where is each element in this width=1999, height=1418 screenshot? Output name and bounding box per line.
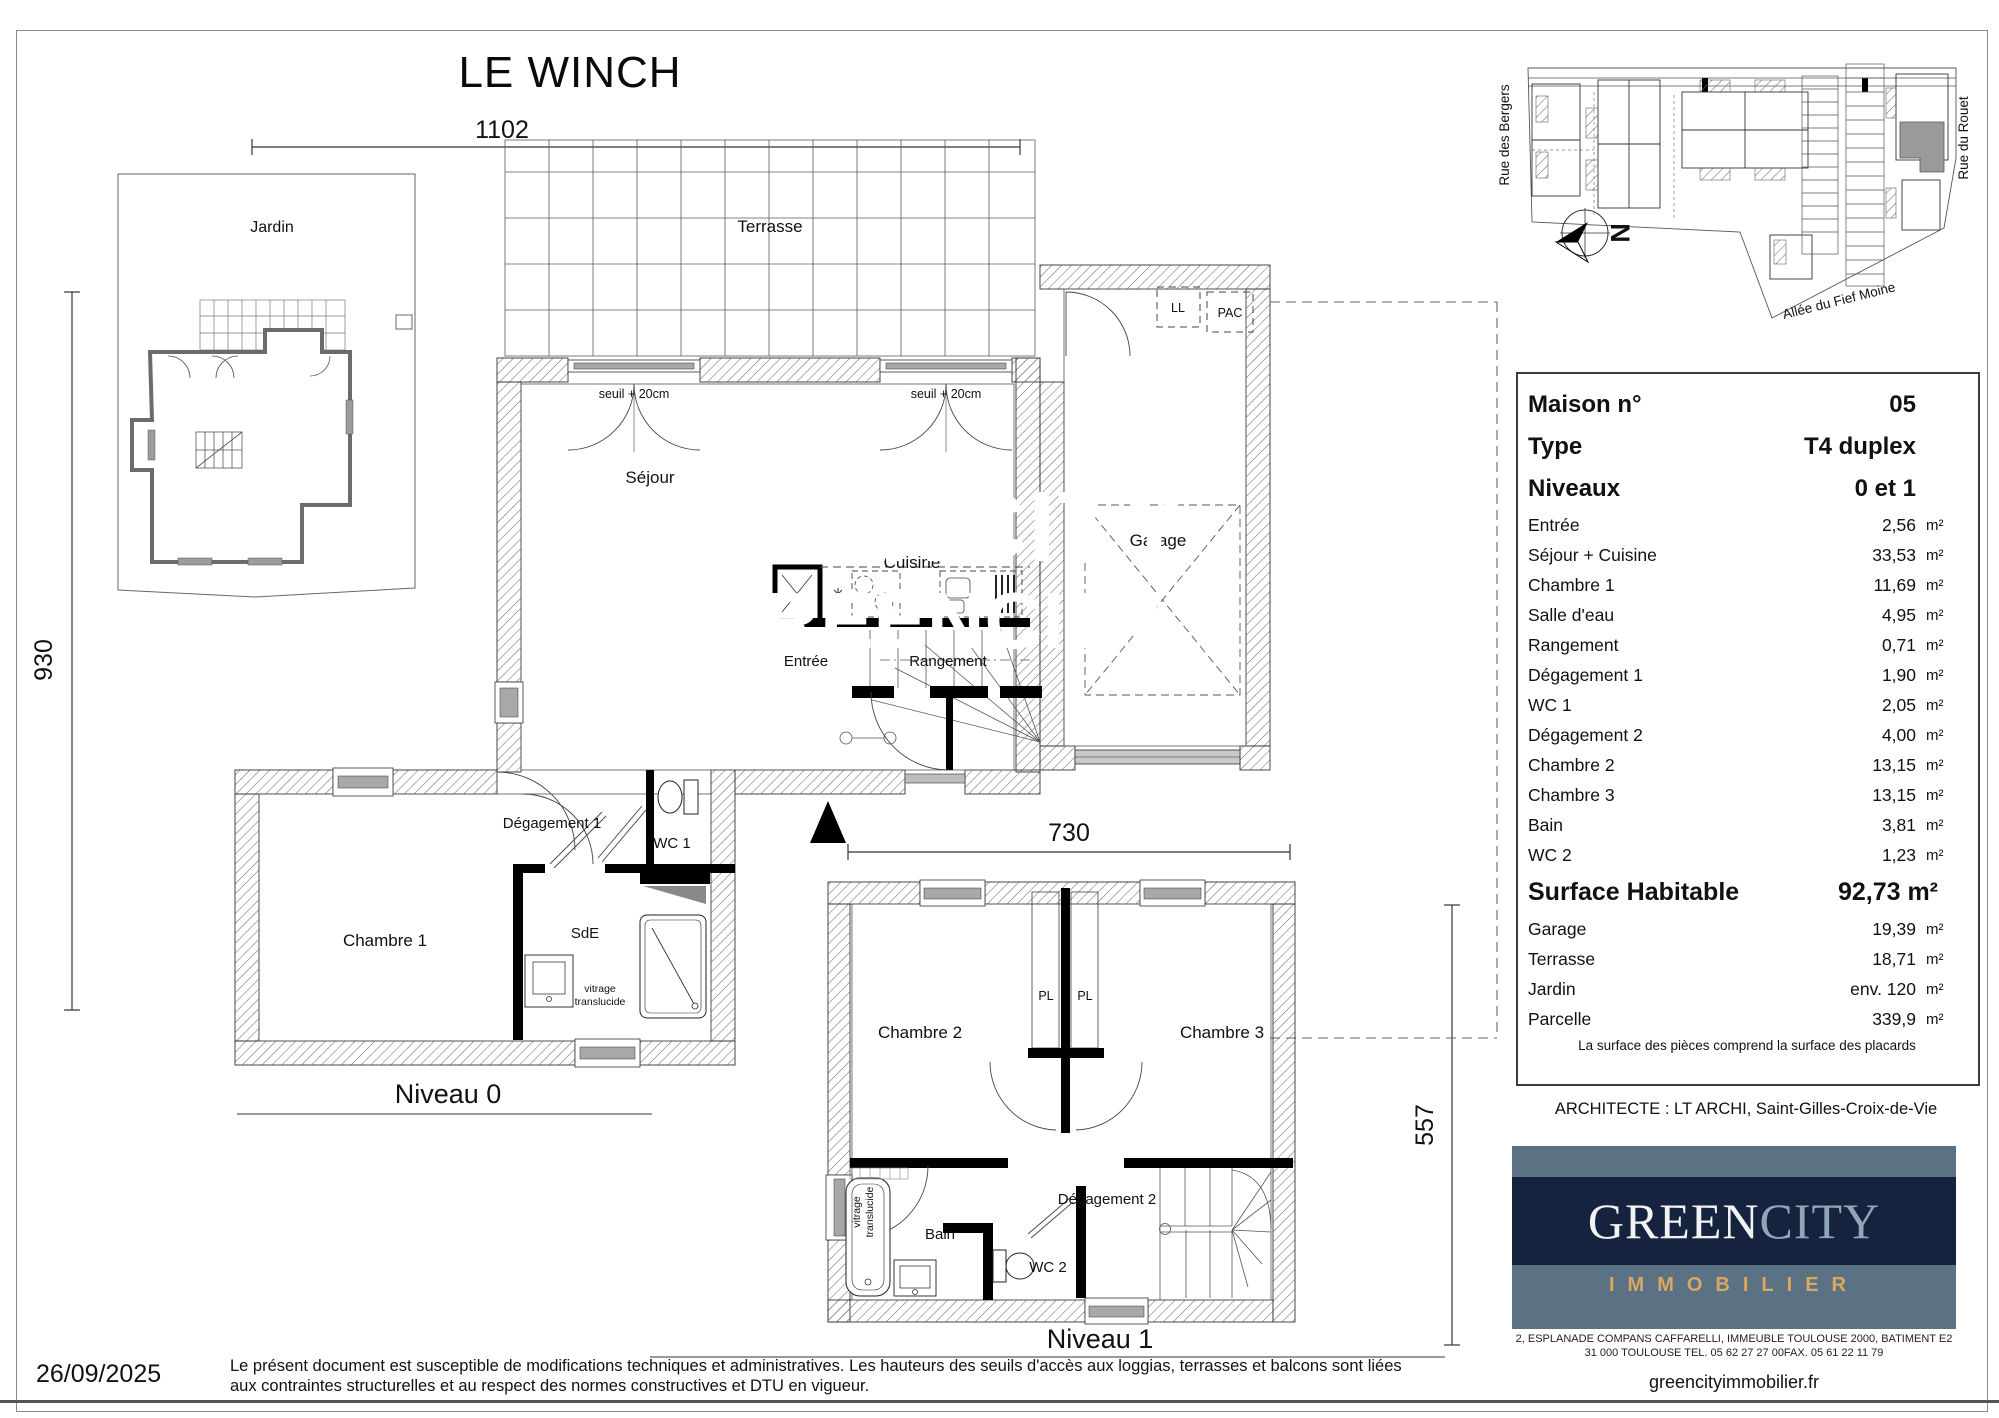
street-label-rouet: Rue du Rouet: [1956, 96, 1971, 180]
info-label: Surface Habitable: [1528, 878, 1748, 907]
info-unit: m²: [1916, 517, 1966, 534]
room-label-sde: SdE: [571, 925, 599, 942]
room-label-degagement1: Dégagement 1: [503, 815, 601, 832]
room-label-chambre3: Chambre 3: [1180, 1023, 1264, 1042]
label-pac: PAC: [1218, 306, 1243, 320]
disclaimer-line-1: Le présent document est susceptible de m…: [230, 1356, 1560, 1376]
logo-wordmark: GREENCITY: [1512, 1177, 1956, 1265]
info-value: 4,00: [1796, 725, 1916, 746]
room-label-chambre2: Chambre 2: [878, 1023, 962, 1042]
logo-address: 2, ESPLANADE COMPANS CAFFARELLI, IMMEUBL…: [1512, 1332, 1956, 1360]
info-value: 1,90: [1796, 665, 1916, 686]
note-seuil-1: seuil + 20cm: [599, 387, 670, 401]
partitions-niveau1: [850, 888, 1293, 1300]
info-panel: Maison n° 05 Type T4 duplex Niveaux 0 et…: [1516, 372, 1980, 1086]
dimension-557: [1444, 905, 1460, 1345]
info-label: Dégagement 1: [1528, 665, 1796, 686]
greencity-logo: GREENCITY IMMOBILIER: [1512, 1146, 1956, 1329]
info-label: Dégagement 2: [1528, 725, 1796, 746]
disclaimer-line-2: aux contraintes structurelles et au resp…: [230, 1376, 1560, 1396]
info-row: Chambre 2 13,15 m²: [1528, 750, 1966, 780]
floorplan-document: 1102 930 730 557: [0, 0, 1999, 1418]
info-row: Dégagement 2 4,00 m²: [1528, 720, 1966, 750]
info-row: WC 2 1,23 m²: [1528, 840, 1966, 870]
info-row: Séjour + Cuisine 33,53 m²: [1528, 540, 1966, 570]
architect-line: ARCHITECTE : LT ARCHI, Saint-Gilles-Croi…: [1512, 1100, 1980, 1119]
garden-plan: [118, 174, 415, 597]
info-value: 2,05: [1796, 695, 1916, 716]
info-label: Parcelle: [1528, 1009, 1796, 1030]
info-value: 0,71: [1796, 635, 1916, 656]
logo-green: GREEN: [1588, 1192, 1760, 1250]
site-plan: N Rue des Bergers Rue du Rouet Allée du …: [1497, 64, 1971, 322]
info-value: 13,15: [1796, 755, 1916, 776]
label-ll: LL: [1171, 301, 1185, 315]
room-label-pl2: PL: [1077, 989, 1092, 1003]
info-value: 1,23: [1796, 845, 1916, 866]
info-value: 19,39: [1796, 919, 1916, 940]
info-row-type: Type T4 duplex: [1528, 426, 1966, 468]
info-label: Garage: [1528, 919, 1796, 940]
info-label: Type: [1528, 433, 1716, 461]
street-label-bergers: Rue des Bergers: [1497, 84, 1512, 186]
note-seuil-2: seuil + 20cm: [911, 387, 982, 401]
info-value: 33,53: [1796, 545, 1916, 566]
room-label-jardin: Jardin: [250, 219, 294, 236]
info-unit: m²: [1916, 1011, 1966, 1028]
room-label-chambre1: Chambre 1: [343, 931, 427, 950]
info-row-maison: Maison n° 05: [1528, 384, 1966, 426]
page-title: LE WINCH: [320, 48, 820, 98]
address-line-2: 31 000 TOULOUSE TEL. 05 62 27 27 00FAX. …: [1512, 1346, 1956, 1360]
note-vitrage0-2: translucide: [575, 996, 626, 1008]
info-row: Jardin env. 120 m²: [1528, 974, 1966, 1004]
info-label: Séjour + Cuisine: [1528, 545, 1796, 566]
bottom-rule: [0, 1400, 1999, 1403]
info-value: 05: [1716, 391, 1916, 419]
info-value: 13,15: [1796, 785, 1916, 806]
info-label: Chambre 3: [1528, 785, 1796, 806]
highlighted-unit: [1900, 122, 1944, 172]
room-label-bain: Bain: [925, 1226, 955, 1243]
site-parking: [1802, 64, 1884, 286]
info-label: Terrasse: [1528, 949, 1796, 970]
plan1-caption: Niveau 1: [1047, 1324, 1154, 1354]
document-date: 26/09/2025: [36, 1360, 161, 1389]
info-unit: m²: [1916, 727, 1966, 744]
info-unit: m²: [1916, 547, 1966, 564]
info-row: Entrée 2,56 m²: [1528, 510, 1966, 540]
room-label-terrasse: Terrasse: [737, 217, 802, 236]
dimension-1102: [252, 139, 1020, 155]
info-label: Entrée: [1528, 515, 1796, 536]
logo-city: CITY: [1760, 1192, 1881, 1250]
info-label: Jardin: [1528, 979, 1796, 1000]
street-label-fief-moine: Allée du Fief Moine: [1781, 279, 1897, 322]
dim-557-label: 557: [1411, 1104, 1439, 1146]
info-unit: m²: [1916, 787, 1966, 804]
info-unit: m²: [1916, 667, 1966, 684]
info-unit: m²: [1916, 637, 1966, 654]
note-vitrage1-2: translucide: [864, 1186, 876, 1237]
dim-930-label: 930: [30, 639, 58, 681]
north-label: N: [1605, 223, 1635, 243]
room-label-degagement2: Dégagement 2: [1058, 1191, 1156, 1208]
info-label: Chambre 1: [1528, 575, 1796, 596]
info-unit: m²: [1916, 847, 1966, 864]
address-line-1: 2, ESPLANADE COMPANS CAFFARELLI, IMMEUBL…: [1512, 1332, 1956, 1346]
info-row: Dégagement 1 1,90 m²: [1528, 660, 1966, 690]
info-row: Chambre 3 13,15 m²: [1528, 780, 1966, 810]
watermark-logo: GREENCITY: [588, 470, 1189, 585]
legal-disclaimer: Le présent document est susceptible de m…: [230, 1356, 1560, 1396]
info-value: 92,73 m²: [1748, 878, 1938, 907]
info-row: Chambre 1 11,69 m²: [1528, 570, 1966, 600]
info-label: Chambre 2: [1528, 755, 1796, 776]
info-value: 4,95: [1796, 605, 1916, 626]
info-label: Niveaux: [1528, 475, 1716, 503]
info-label: Bain: [1528, 815, 1796, 836]
dimension-930: [64, 292, 80, 1010]
info-unit: m²: [1916, 817, 1966, 834]
plan0-caption: Niveau 0: [395, 1079, 502, 1109]
plan-niveau1: Chambre 2 Chambre 3 PL PL Dégagement 2 B…: [650, 880, 1445, 1357]
windows-niveau0: [333, 360, 1240, 1067]
info-unit: m²: [1916, 757, 1966, 774]
info-value: env. 120: [1796, 979, 1916, 1000]
info-unit: m²: [1916, 607, 1966, 624]
info-value: T4 duplex: [1716, 433, 1916, 461]
door-posts-niveau0: [852, 686, 1042, 770]
room-label-wc1: WC 1: [653, 835, 691, 852]
info-row-surface: Surface Habitable 92,73 m²: [1528, 870, 1966, 914]
info-unit: m²: [1916, 981, 1966, 998]
info-row: Garage 19,39 m²: [1528, 914, 1966, 944]
info-value: 339,9: [1796, 1009, 1916, 1030]
info-unit: m²: [1916, 951, 1966, 968]
door-arcs-niveau1: [856, 1062, 1142, 1238]
info-label: WC 1: [1528, 695, 1796, 716]
entrance-marker: [810, 801, 846, 843]
info-row: Salle d'eau 4,95 m²: [1528, 600, 1966, 630]
note-vitrage0-1: vitrage: [584, 983, 616, 995]
info-row: Rangement 0,71 m²: [1528, 630, 1966, 660]
info-unit: m²: [1916, 921, 1966, 938]
room-label-wc2: WC 2: [1029, 1259, 1067, 1276]
info-value: 2,56: [1796, 515, 1916, 536]
info-value: 18,71: [1796, 949, 1916, 970]
info-label: Maison n°: [1528, 391, 1716, 419]
info-label: WC 2: [1528, 845, 1796, 866]
north-compass: [1556, 208, 1610, 262]
info-label: Rangement: [1528, 635, 1796, 656]
info-value: 11,69: [1796, 575, 1916, 596]
terrasse-grid: [505, 140, 1035, 356]
info-unit: m²: [1916, 697, 1966, 714]
info-value: 3,81: [1796, 815, 1916, 836]
info-label: Salle d'eau: [1528, 605, 1796, 626]
info-row: Bain 3,81 m²: [1528, 810, 1966, 840]
room-label-pl1: PL: [1038, 989, 1053, 1003]
info-value: 0 et 1: [1716, 475, 1916, 503]
website-link[interactable]: greencityimmobilier.fr: [1512, 1372, 1956, 1393]
info-row: Parcelle 339,9 m²: [1528, 1004, 1966, 1034]
info-note: La surface des pièces comprend la surfac…: [1528, 1038, 1966, 1053]
info-row: WC 1 2,05 m²: [1528, 690, 1966, 720]
note-vitrage1-1: vitrage: [851, 1196, 863, 1228]
watermark-logo-2: GREENCITY: [700, 575, 1167, 667]
logo-immobilier: IMMOBILIER: [1512, 1274, 1956, 1297]
stairs-niveau1: [1160, 1168, 1272, 1300]
info-unit: m²: [1916, 577, 1966, 594]
info-row-niveaux: Niveaux 0 et 1: [1528, 468, 1966, 510]
dim-730-label: 730: [1048, 819, 1090, 847]
info-row: Terrasse 18,71 m²: [1528, 944, 1966, 974]
